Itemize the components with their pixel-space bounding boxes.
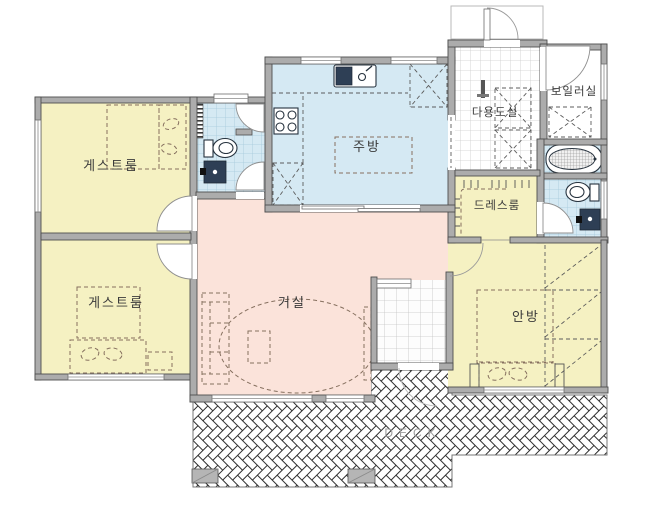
door-opening bbox=[448, 115, 455, 170]
label-boiler-room: 보일러실 bbox=[551, 84, 597, 98]
window-symbol bbox=[601, 181, 607, 219]
door-leaf bbox=[484, 9, 490, 40]
window-symbol bbox=[68, 374, 164, 380]
label-utility-room: 다용도실 bbox=[472, 106, 518, 119]
label-guest-room-top: 게스트룸 bbox=[83, 158, 139, 173]
kitchen-sink-symbol bbox=[334, 65, 376, 87]
label-deck: DECK bbox=[384, 426, 441, 440]
foyer-floor bbox=[374, 280, 449, 366]
window-symbol bbox=[301, 57, 341, 64]
wall-segment bbox=[448, 40, 455, 120]
wall-segment bbox=[265, 57, 272, 212]
floor-plan-canvas: 게스트룸 게스트룸 주방 거실 다용도실 보일러실 드레스룸 안방 DECK bbox=[0, 0, 656, 506]
wall-segment bbox=[540, 139, 607, 145]
label-dress-room: 드레스룸 bbox=[474, 199, 520, 212]
window-symbol bbox=[35, 120, 41, 212]
label-living-room: 거실 bbox=[278, 295, 306, 310]
wall-segment bbox=[41, 233, 191, 240]
sliding-door-symbol bbox=[358, 209, 420, 212]
wall-segment bbox=[455, 170, 540, 176]
window-symbol bbox=[214, 94, 248, 103]
label-guest-room-bottom: 게스트룸 bbox=[88, 295, 144, 310]
wall-segment bbox=[448, 237, 481, 243]
door-opening bbox=[484, 40, 520, 47]
toilet-symbol bbox=[566, 183, 599, 202]
wall-segment bbox=[371, 277, 377, 370]
bathtub-symbol bbox=[546, 145, 602, 173]
door-opening bbox=[398, 363, 439, 370]
label-kitchen: 주방 bbox=[353, 139, 381, 154]
wall-segment bbox=[446, 272, 453, 370]
wall-segment bbox=[601, 240, 607, 393]
stove-symbol bbox=[274, 108, 298, 134]
drain-symbol bbox=[477, 94, 489, 97]
window-symbol bbox=[601, 64, 607, 100]
entrance-door bbox=[451, 6, 543, 40]
wall-segment bbox=[540, 173, 607, 179]
window-symbol bbox=[391, 57, 437, 64]
window-symbol bbox=[326, 395, 364, 402]
wall-segment bbox=[510, 237, 608, 243]
door-opening bbox=[236, 192, 264, 199]
toilet-symbol bbox=[204, 139, 237, 158]
window-symbol bbox=[212, 395, 312, 402]
window-symbol bbox=[484, 387, 564, 393]
sliding-door-symbol bbox=[302, 206, 364, 209]
sink-symbol bbox=[200, 161, 226, 183]
label-master-bedroom: 안방 bbox=[512, 309, 540, 324]
shoe-cabinet-symbol bbox=[377, 279, 411, 288]
partition-stub bbox=[236, 129, 252, 135]
floor-fills bbox=[38, 43, 604, 395]
floor-plan: 게스트룸 게스트룸 주방 거실 다용도실 보일러실 드레스룸 안방 DECK bbox=[0, 0, 656, 506]
entrance-stoop bbox=[451, 6, 543, 39]
